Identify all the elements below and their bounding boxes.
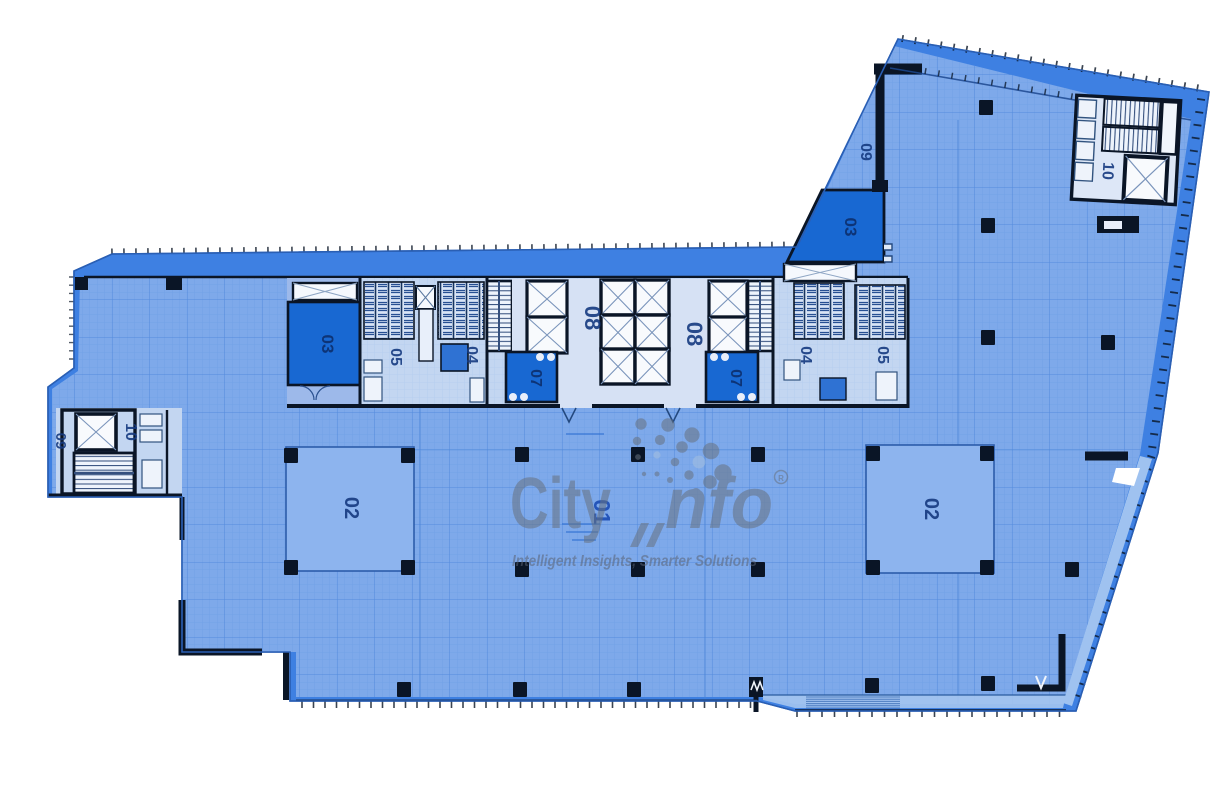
svg-text:02: 02 xyxy=(340,497,362,519)
svg-text:Intelligent Insights, Smarter: Intelligent Insights, Smarter Solutions xyxy=(512,553,757,570)
svg-text:10: 10 xyxy=(122,423,139,441)
svg-text:05: 05 xyxy=(387,348,404,366)
svg-text:03: 03 xyxy=(318,335,337,354)
svg-text:10: 10 xyxy=(1098,162,1116,181)
svg-text:08: 08 xyxy=(682,322,707,346)
svg-text:05: 05 xyxy=(874,346,891,364)
svg-text:03: 03 xyxy=(841,218,860,237)
svg-text:07: 07 xyxy=(527,369,544,387)
svg-text:08: 08 xyxy=(580,306,605,330)
svg-text:02: 02 xyxy=(920,498,942,520)
svg-text:City: City xyxy=(510,464,611,544)
svg-text:09: 09 xyxy=(857,143,874,161)
svg-text:R: R xyxy=(778,474,784,483)
svg-text:07: 07 xyxy=(727,369,744,387)
svg-text:04: 04 xyxy=(463,346,480,364)
svg-text:09: 09 xyxy=(52,433,69,450)
